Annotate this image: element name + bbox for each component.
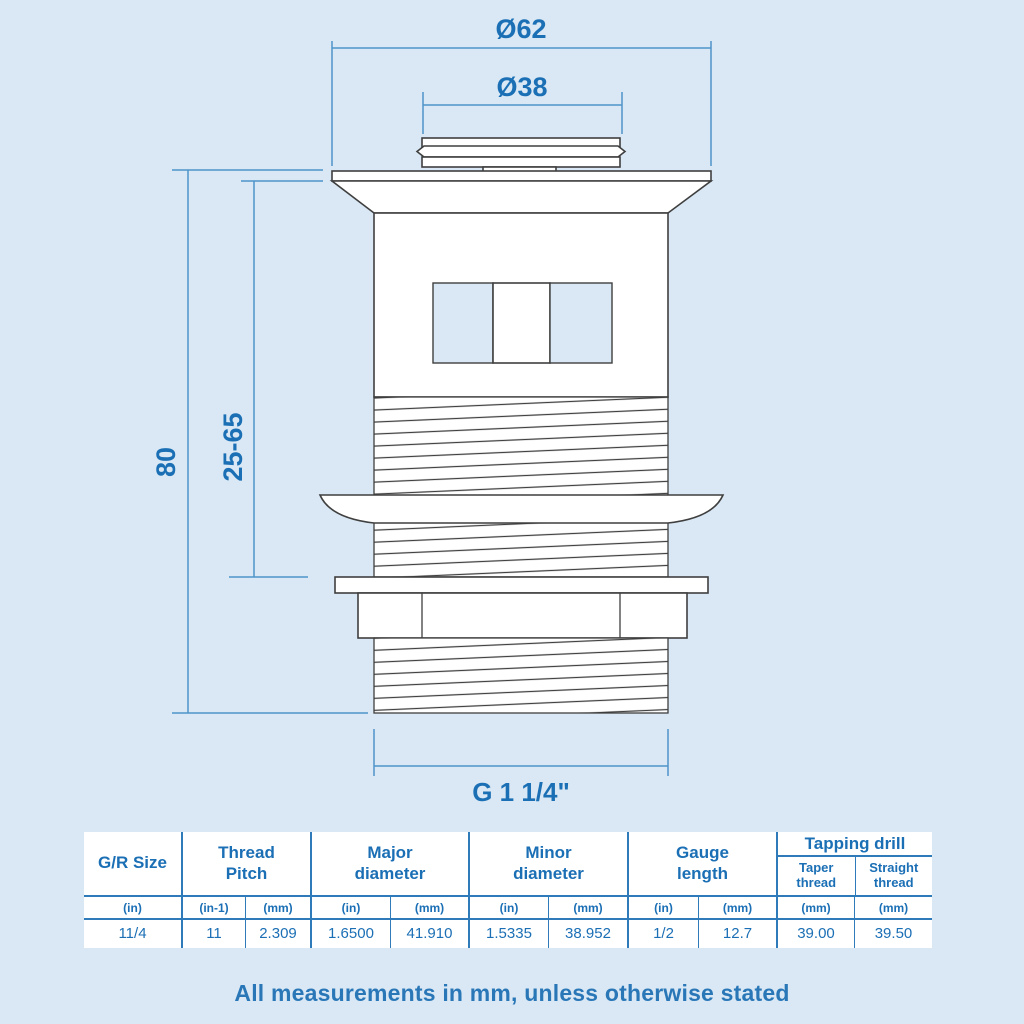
tapping-drill-label: Tapping drill — [778, 832, 932, 857]
flange — [332, 171, 711, 213]
major-diameter-label: Major diameter — [347, 843, 433, 884]
overall-length-label: 80 — [151, 447, 181, 477]
upper-thread — [374, 397, 668, 577]
taper-thread-label: Taper thread — [787, 861, 845, 891]
lower-thread — [374, 638, 668, 713]
value-cell-thread-pitch-mm: 2.309 — [246, 920, 312, 948]
thread-size-label: G 1 1/4" — [472, 777, 570, 807]
unit-cell: (mm) — [855, 897, 932, 920]
col-header-major-diameter: Major diameter — [312, 832, 470, 897]
gr-size-label: G/R Size — [98, 853, 167, 873]
measurement-note: All measurements in mm, unless otherwise… — [0, 980, 1024, 1007]
plug-diameter-label: Ø38 — [496, 72, 547, 102]
unit-cell: (mm) — [778, 897, 855, 920]
col-header-minor-diameter: Minor diameter — [470, 832, 629, 897]
col-header-tapping-drill: Tapping drill Taper thread Straight thre… — [778, 832, 932, 897]
sealing-washer — [320, 495, 723, 523]
value-cell-minor-diameter-in: 1.5335 — [470, 920, 549, 948]
unit-cell: (in) — [629, 897, 699, 920]
clamping-range-label: 25-65 — [218, 412, 248, 481]
value-cell-major-diameter-in: 1.6500 — [312, 920, 391, 948]
dimension-overall-length: 80 — [151, 170, 368, 713]
value-cell-gauge-length-in: 1/2 — [629, 920, 699, 948]
straight-thread-label: Straight thread — [865, 861, 923, 891]
value-cell-straight-thread: 39.50 — [855, 920, 932, 948]
unit-cell: (mm) — [699, 897, 778, 920]
unit-cell: (mm) — [246, 897, 312, 920]
thread-pitch-label: Thread Pitch — [211, 843, 283, 884]
col-header-straight-thread: Straight thread — [856, 857, 933, 895]
value-cell-taper-thread: 39.00 — [778, 920, 855, 948]
overflow-slot — [433, 283, 612, 363]
value-cell-minor-diameter-mm: 38.952 — [549, 920, 629, 948]
minor-diameter-label: Minor diameter — [506, 843, 592, 884]
col-header-taper-thread: Taper thread — [778, 857, 856, 895]
basin-waste-spec-sheet: Ø62 Ø38 80 25-65 — [0, 0, 1024, 1024]
waste-body — [374, 213, 668, 397]
dimension-clamping-range: 25-65 — [218, 181, 323, 577]
dimension-plug-diameter: Ø38 — [423, 72, 622, 134]
col-header-thread-pitch: Thread Pitch — [183, 832, 312, 897]
value-cell-thread-pitch-in: 11 — [183, 920, 246, 948]
value-cell-gr-size: 11/4 — [84, 920, 183, 948]
unit-cell: (in-1) — [183, 897, 246, 920]
technical-drawing: Ø62 Ø38 80 25-65 — [0, 0, 1024, 822]
outer-diameter-label: Ø62 — [495, 14, 546, 44]
waste-fitting-drawing — [320, 138, 723, 713]
backnut — [335, 577, 708, 638]
value-cell-major-diameter-mm: 41.910 — [391, 920, 470, 948]
unit-cell: (in) — [470, 897, 549, 920]
plug-cap — [417, 138, 625, 175]
thread-spec-table: G/R Size Thread Pitch Major diameter Min… — [84, 832, 932, 948]
unit-cell: (in) — [312, 897, 391, 920]
unit-cell: (in) — [84, 897, 183, 920]
col-header-gauge-length: Gauge length — [629, 832, 778, 897]
unit-cell: (mm) — [391, 897, 470, 920]
value-cell-gauge-length-mm: 12.7 — [699, 920, 778, 948]
gauge-length-label: Gauge length — [668, 843, 738, 884]
dimension-thread-size: G 1 1/4" — [374, 729, 668, 807]
unit-cell: (mm) — [549, 897, 629, 920]
col-header-gr-size: G/R Size — [84, 832, 183, 897]
